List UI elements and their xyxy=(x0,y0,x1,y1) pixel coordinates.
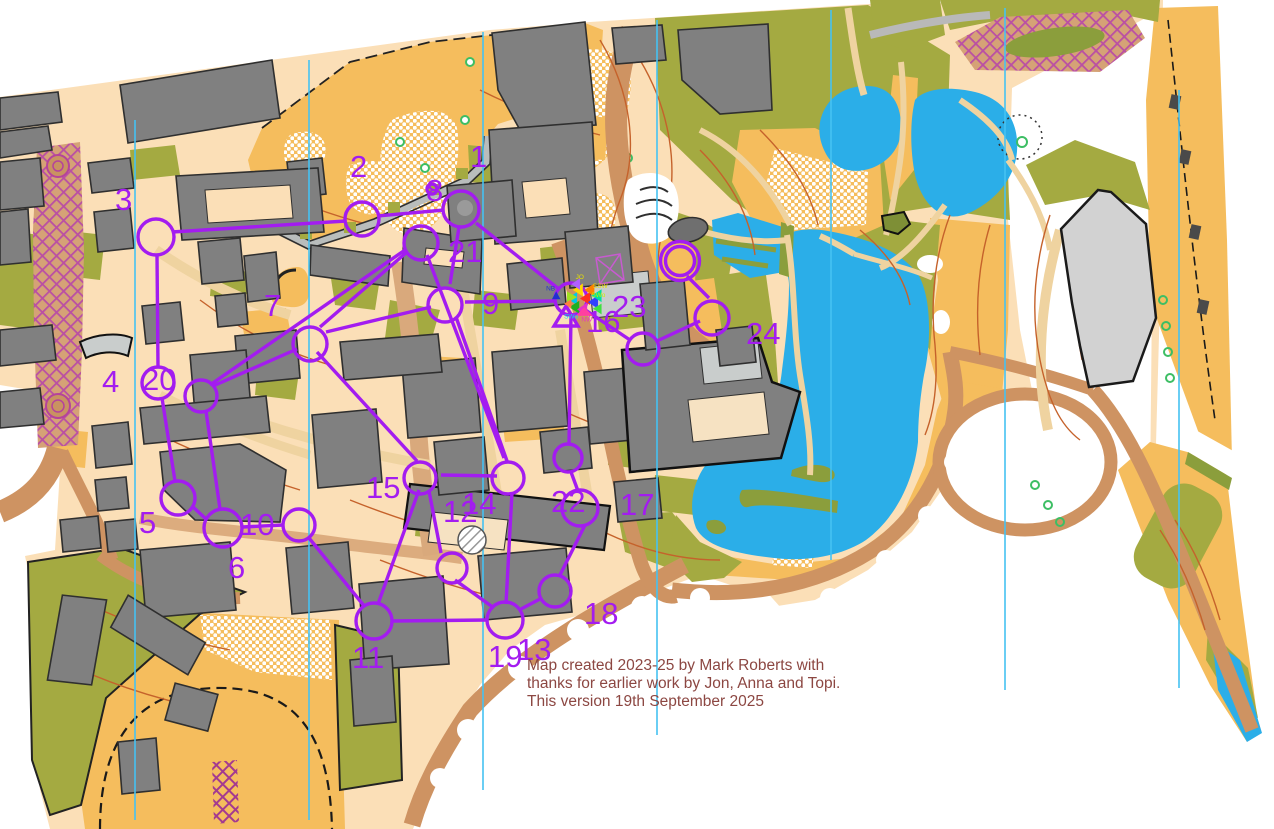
svg-text:1: 1 xyxy=(470,139,487,174)
svg-text:14: 14 xyxy=(462,486,496,521)
svg-text:15: 15 xyxy=(366,470,400,505)
svg-text:11: 11 xyxy=(352,640,384,675)
svg-text:24: 24 xyxy=(746,316,780,351)
svg-text:10: 10 xyxy=(240,507,274,542)
svg-text:9: 9 xyxy=(482,286,499,321)
svg-text:19: 19 xyxy=(488,639,522,674)
svg-text:SWo: SWo xyxy=(564,314,578,321)
svg-text:Map created 2023-25 by Mark Ro: Map created 2023-25 by Mark Roberts with xyxy=(527,657,824,674)
svg-text:18: 18 xyxy=(584,596,618,631)
svg-text:SWo: SWo xyxy=(591,292,605,299)
svg-text:20: 20 xyxy=(142,362,176,397)
svg-text:21: 21 xyxy=(448,234,482,269)
svg-text:thanks for earlier work by Jon: thanks for earlier work by Jon, Anna and… xyxy=(527,675,840,692)
svg-text:This version 19th September 20: This version 19th September 2025 xyxy=(527,693,764,710)
svg-text:SSW: SSW xyxy=(593,283,609,290)
svg-text:4: 4 xyxy=(102,364,119,399)
svg-text:17: 17 xyxy=(620,487,654,522)
svg-text:JO: JO xyxy=(576,274,584,281)
svg-text:6: 6 xyxy=(228,550,245,585)
svg-text:8: 8 xyxy=(426,173,443,208)
svg-text:23: 23 xyxy=(612,289,646,324)
svg-text:3: 3 xyxy=(115,182,132,217)
svg-text:2: 2 xyxy=(350,149,367,184)
svg-text:NW: NW xyxy=(581,317,593,324)
svg-text:22: 22 xyxy=(551,484,585,519)
svg-text:5: 5 xyxy=(139,505,156,540)
svg-text:7: 7 xyxy=(264,288,281,323)
svg-text:NB: NB xyxy=(546,286,555,293)
